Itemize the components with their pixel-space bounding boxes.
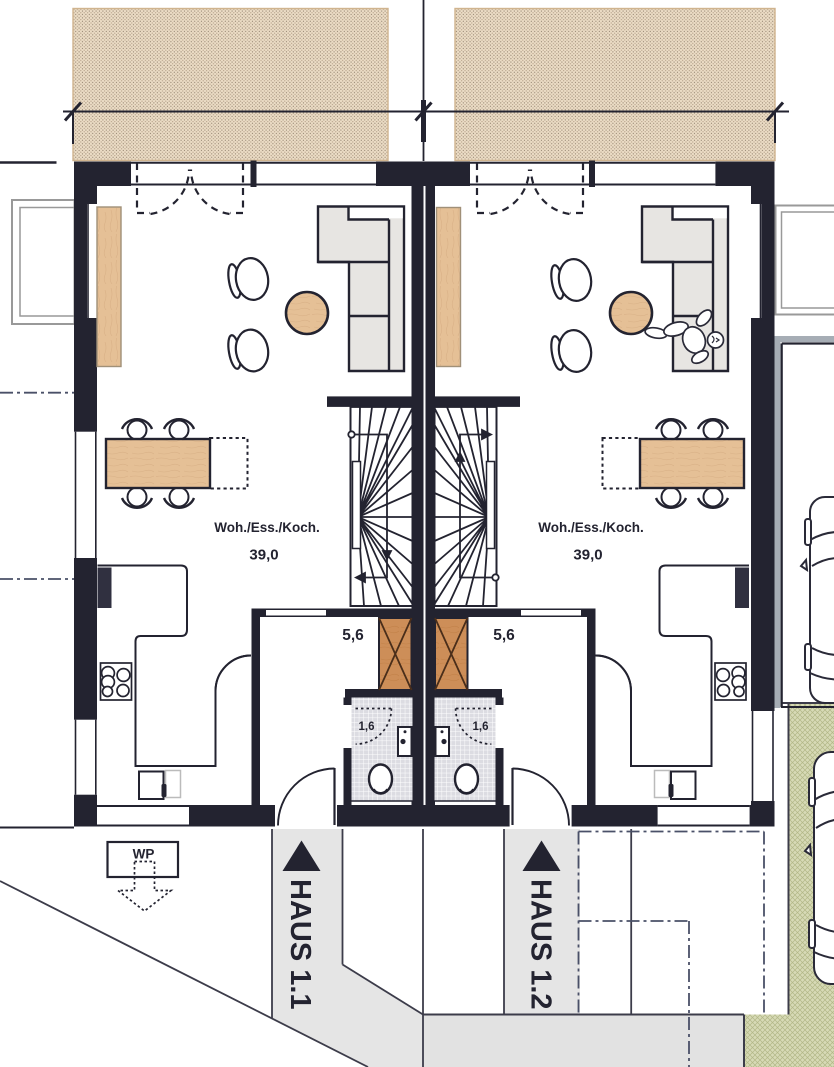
svg-text:5,6: 5,6 [493, 627, 515, 644]
svg-text:HAUS 1.2: HAUS 1.2 [525, 879, 557, 1010]
svg-text:5,6: 5,6 [342, 627, 364, 644]
svg-text:39,0: 39,0 [249, 547, 278, 564]
svg-text:WP: WP [133, 847, 155, 862]
svg-text:39,0: 39,0 [573, 547, 602, 564]
svg-text:1,6: 1,6 [359, 721, 375, 733]
svg-text:Woh./Ess./Koch.: Woh./Ess./Koch. [214, 520, 320, 535]
svg-text:Woh./Ess./Koch.: Woh./Ess./Koch. [538, 520, 644, 535]
svg-text:1,6: 1,6 [473, 721, 489, 733]
svg-text:HAUS 1.1: HAUS 1.1 [284, 879, 316, 1010]
